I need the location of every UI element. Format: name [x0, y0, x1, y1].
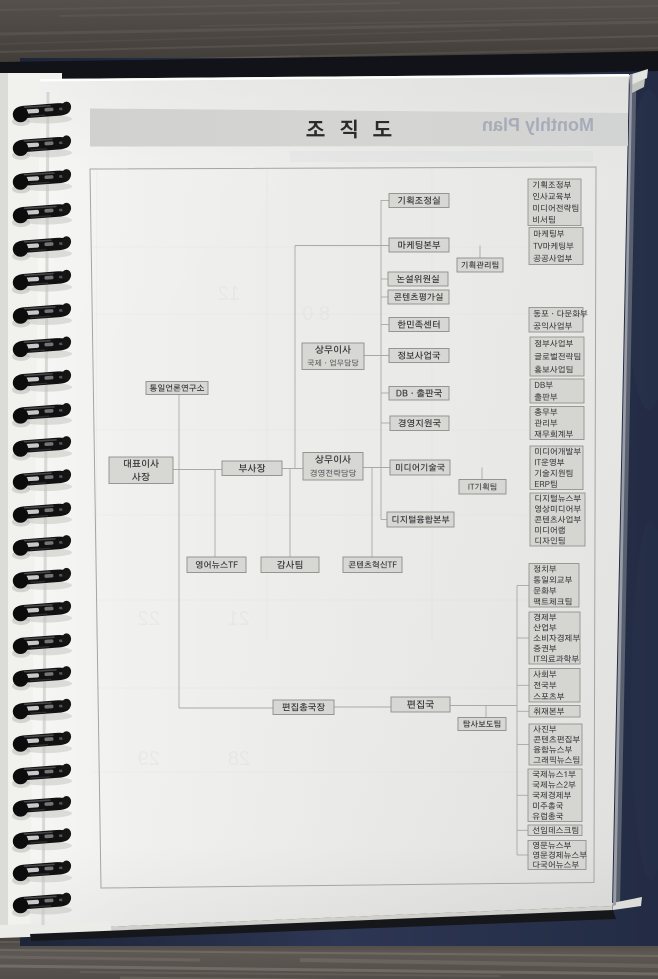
svg-text:12: 12 — [218, 283, 240, 305]
svg-text:22: 22 — [138, 608, 160, 630]
svg-text:8 0: 8 0 — [302, 303, 330, 325]
svg-text:21: 21 — [228, 608, 250, 630]
svg-text:29: 29 — [138, 748, 160, 770]
svg-text:Monthly Plan: Monthly Plan — [482, 115, 594, 135]
svg-text:28: 28 — [228, 748, 250, 770]
